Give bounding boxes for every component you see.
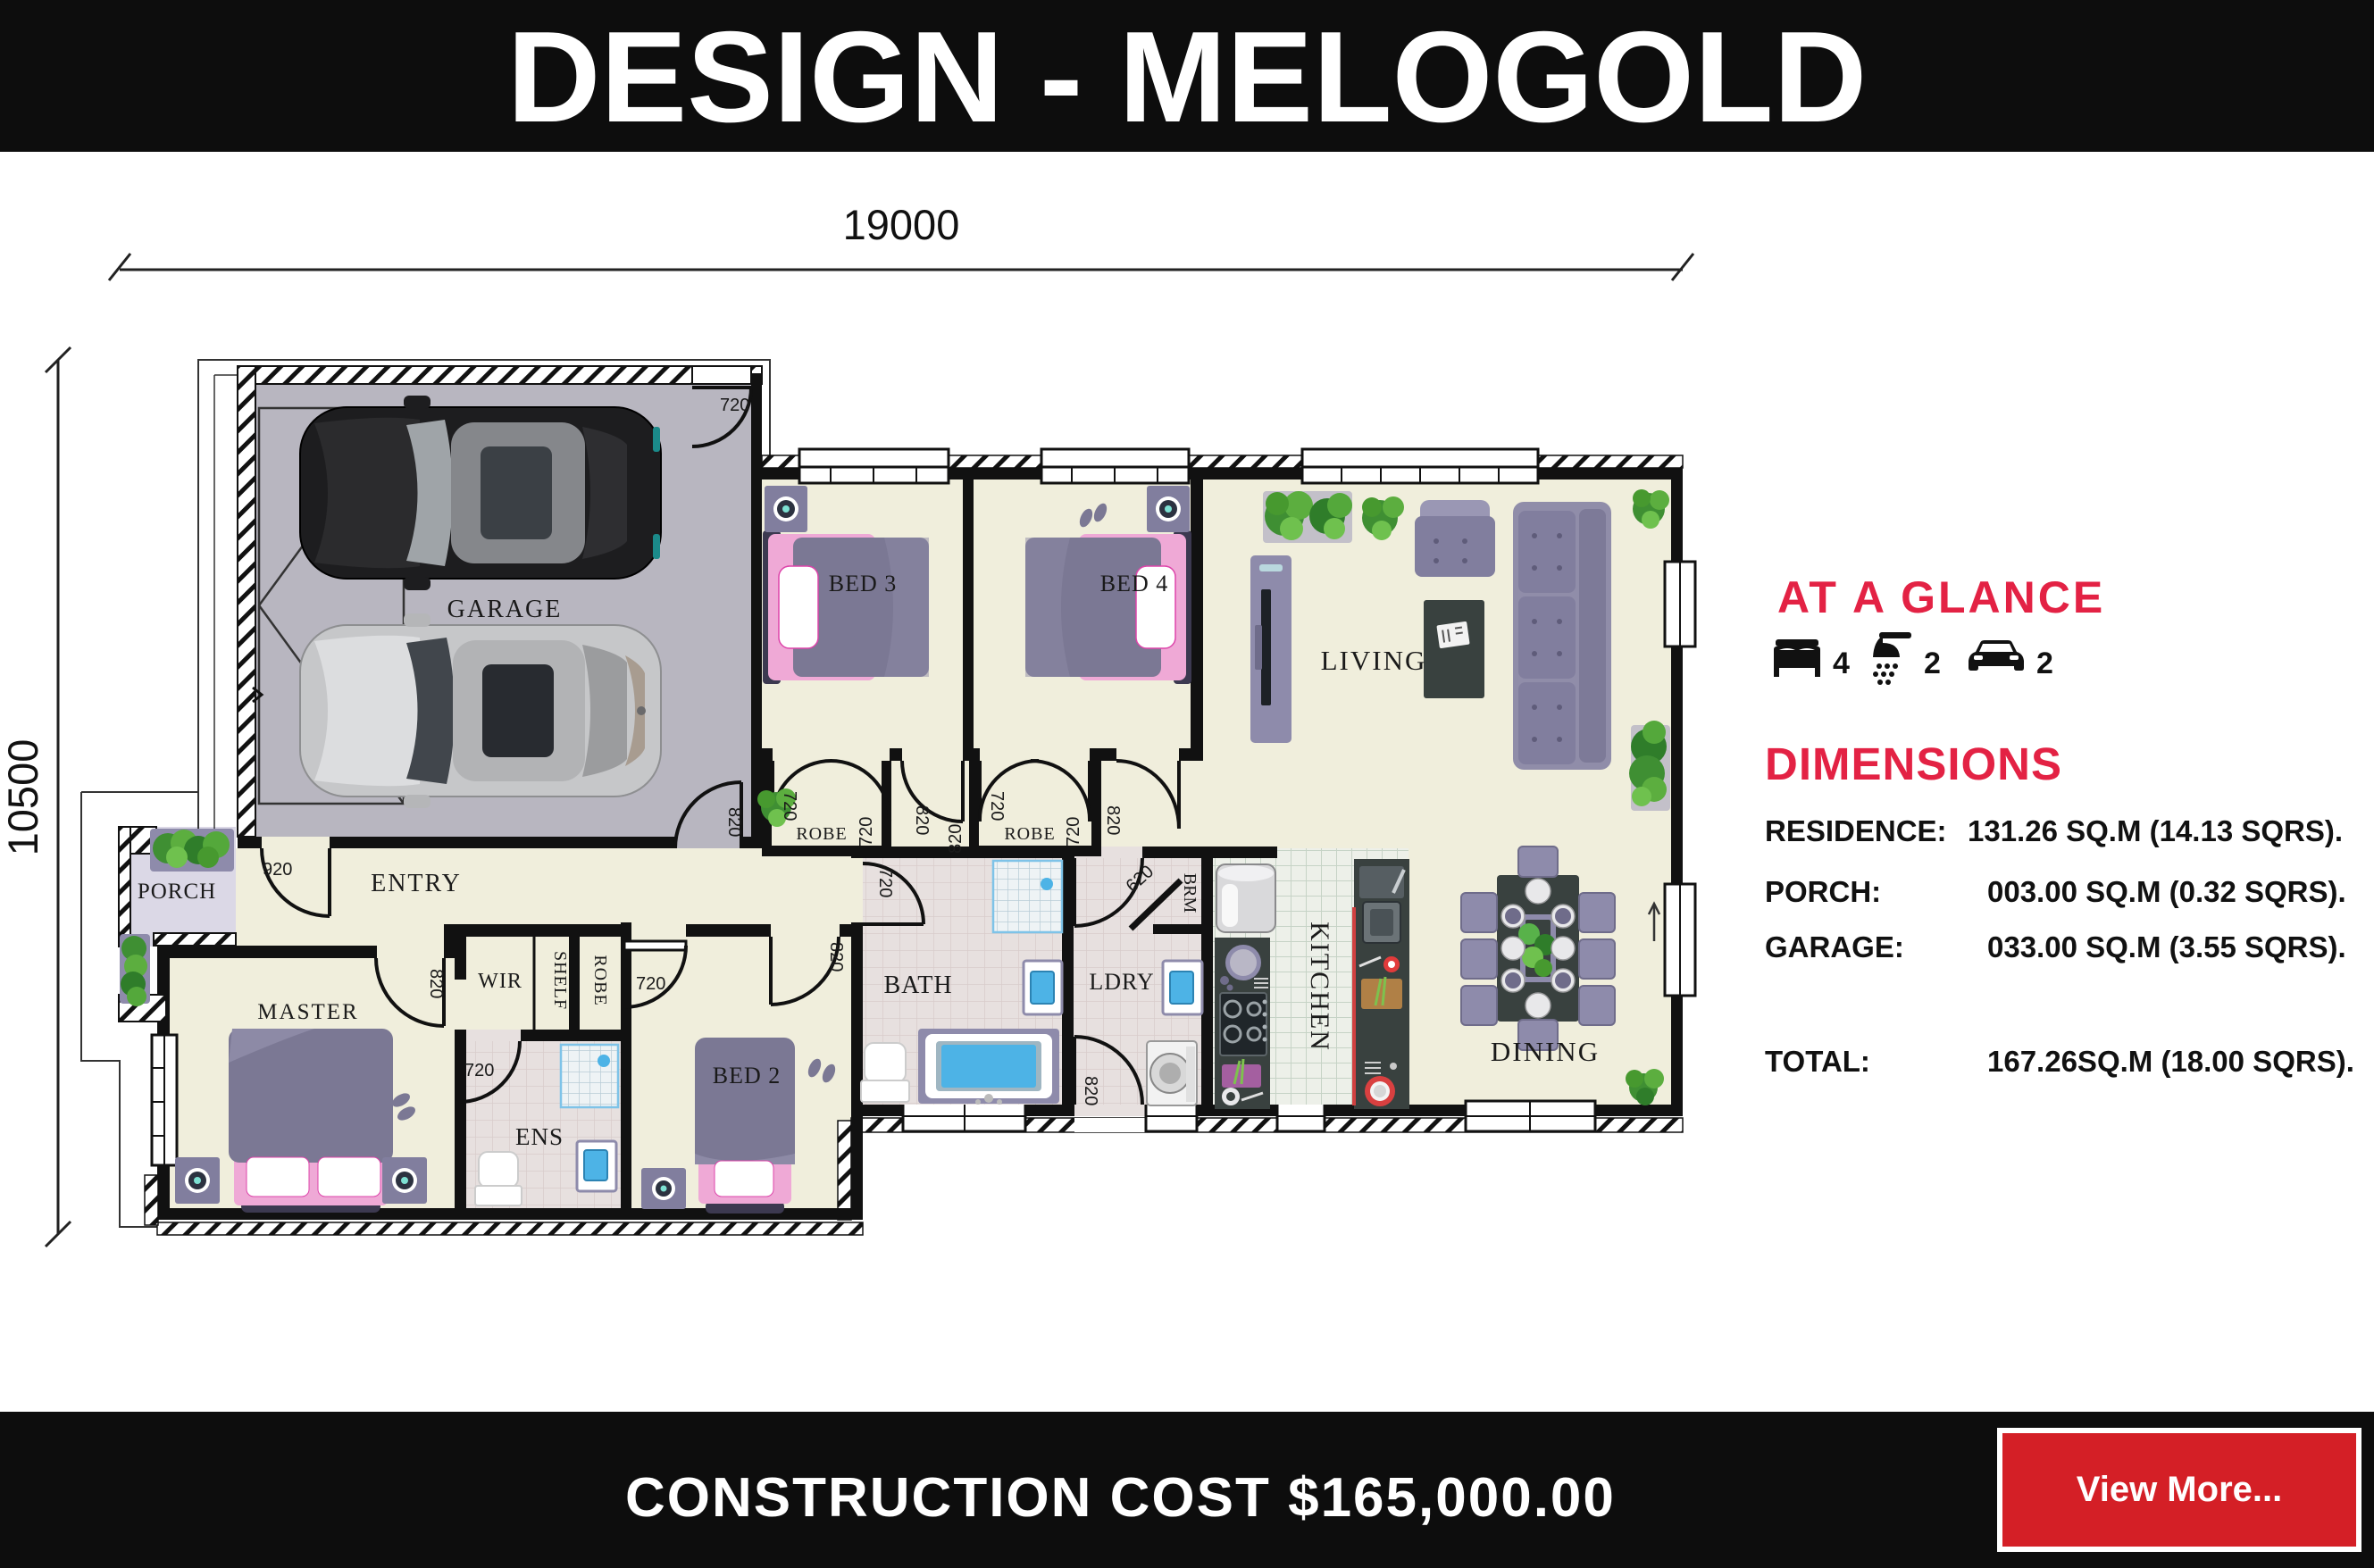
svg-text:820: 820 [724,807,744,837]
svg-text:820: 820 [826,942,846,972]
svg-text:4: 4 [1833,646,1850,680]
svg-text:ROBE: ROBE [590,955,610,1005]
svg-text:BRM: BRM [1180,873,1200,913]
svg-text:BED 2: BED 2 [713,1063,782,1088]
svg-text:920: 920 [263,860,292,880]
svg-text:BATH: BATH [883,972,952,999]
svg-text:2: 2 [2036,646,2053,680]
svg-text:SHELF: SHELF [550,951,570,1010]
svg-text:LIVING: LIVING [1321,645,1427,676]
svg-text:720: 720 [636,974,665,994]
svg-text:MASTER: MASTER [257,1000,358,1024]
svg-text:KITCHEN: KITCHEN [1305,922,1334,1052]
svg-text:BED 3: BED 3 [829,571,898,596]
svg-text:BED 4: BED 4 [1100,571,1169,596]
svg-text:720: 720 [720,396,749,415]
svg-text:820: 820 [912,805,932,835]
svg-text:10500: 10500 [0,739,46,856]
svg-text:PORCH: PORCH [138,880,216,904]
svg-text:820: 820 [946,824,965,854]
svg-text:720: 720 [1064,817,1083,847]
svg-text:ROBE: ROBE [1004,824,1055,844]
svg-text:ENTRY: ENTRY [371,870,462,897]
svg-text:720: 720 [987,791,1007,821]
svg-text:720: 720 [464,1061,494,1080]
svg-text:19000: 19000 [843,201,960,248]
svg-text:ENS: ENS [515,1123,564,1150]
svg-text:2: 2 [1924,646,1941,680]
svg-text:820: 820 [1081,1076,1100,1105]
svg-text:820: 820 [426,969,446,998]
svg-text:720: 720 [857,817,876,847]
svg-text:GARAGE: GARAGE [447,596,563,623]
svg-text:LDRY: LDRY [1089,969,1154,995]
svg-text:720: 720 [780,791,799,821]
svg-text:DINING: DINING [1491,1036,1600,1067]
svg-text:WIR: WIR [478,970,522,993]
svg-text:ROBE: ROBE [796,824,847,844]
svg-text:720: 720 [875,868,895,897]
svg-text:820: 820 [1103,805,1123,835]
